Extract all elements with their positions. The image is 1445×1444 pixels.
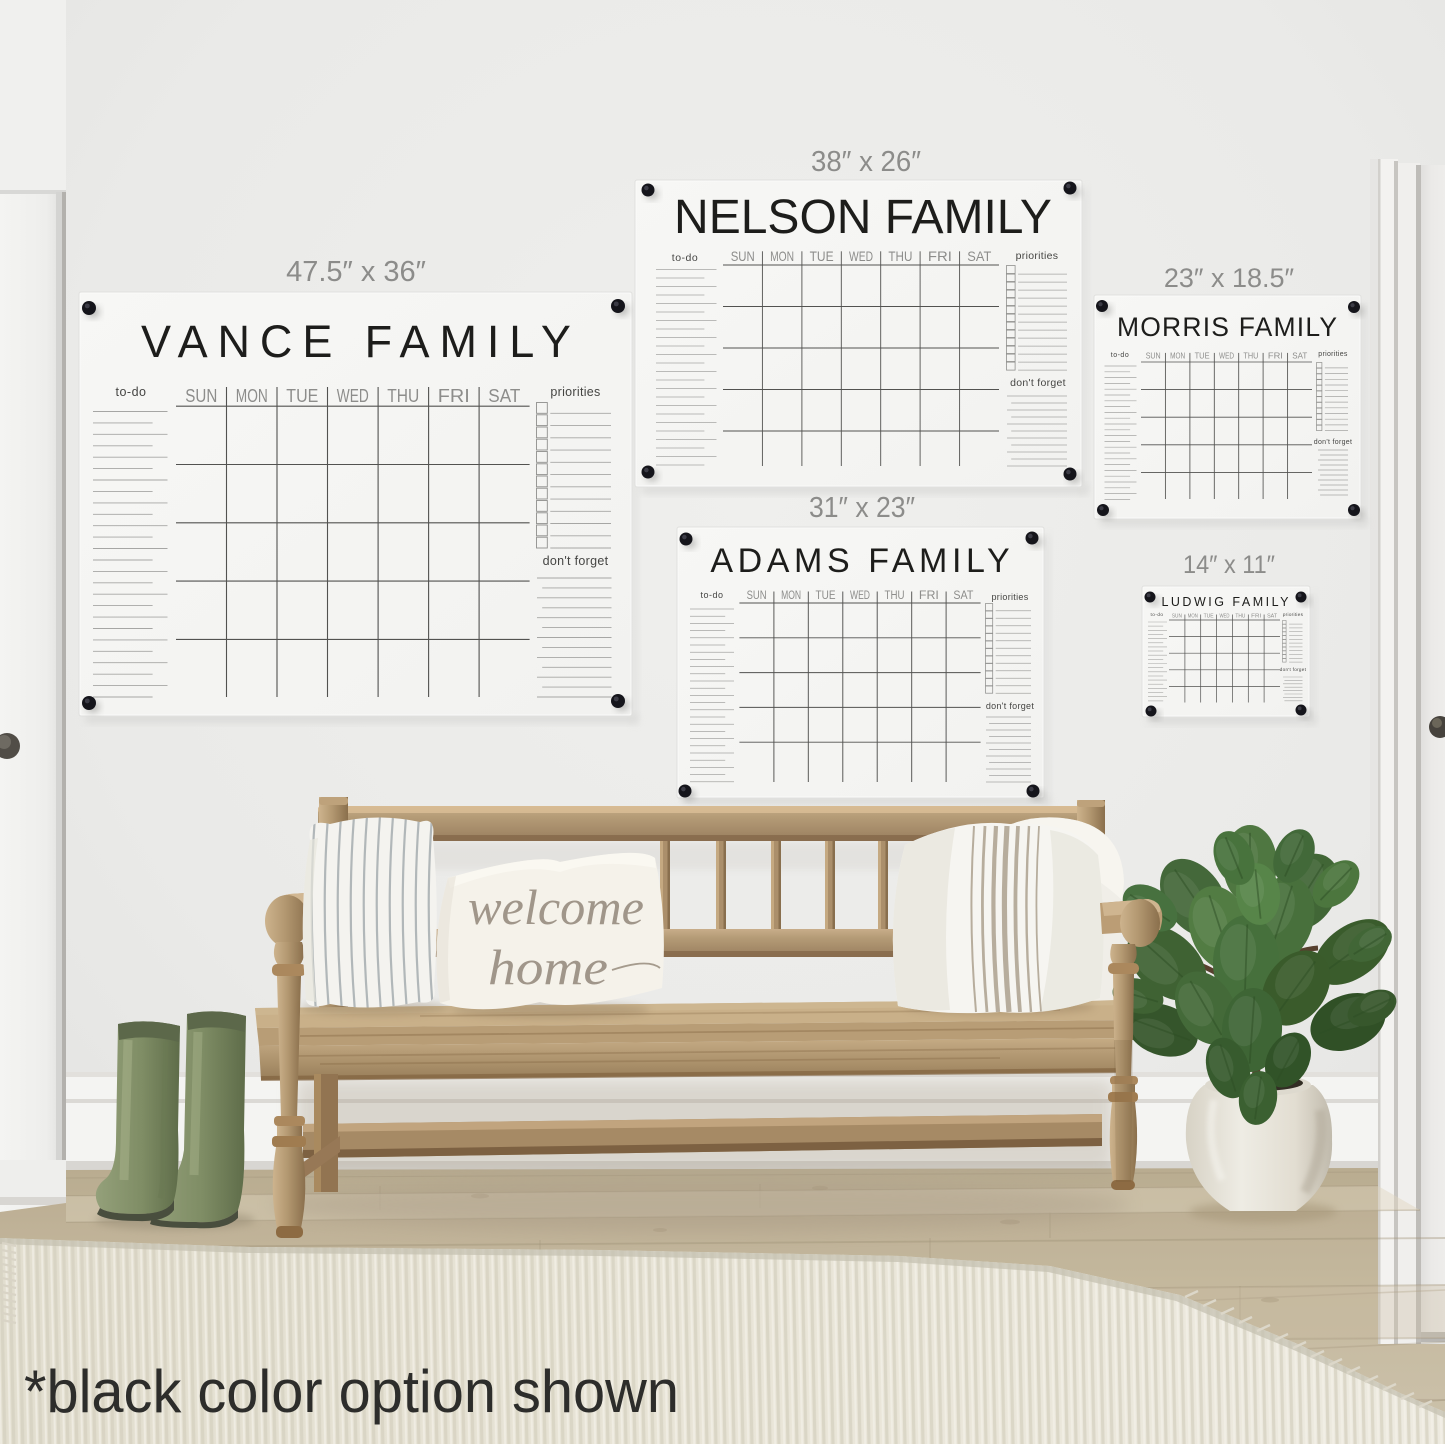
svg-text:don't forget: don't forget — [1010, 377, 1066, 389]
svg-text:TUE: TUE — [810, 248, 834, 264]
svg-text:THU: THU — [387, 386, 419, 406]
svg-text:SUN: SUN — [185, 386, 217, 406]
svg-text:THU: THU — [1243, 351, 1258, 361]
svg-text:welcome: welcome — [468, 879, 644, 935]
svg-text:SUN: SUN — [1146, 351, 1161, 361]
svg-text:priorities: priorities — [1283, 612, 1304, 617]
svg-text:TUE: TUE — [816, 590, 836, 602]
svg-text:FRI: FRI — [438, 386, 470, 406]
svg-text:TUE: TUE — [286, 386, 318, 406]
svg-text:SAT: SAT — [488, 386, 520, 406]
svg-text:23″ x 18.5″: 23″ x 18.5″ — [1164, 263, 1295, 293]
svg-text:38″ x 26″: 38″ x 26″ — [811, 146, 921, 178]
svg-text:don't forget: don't forget — [1280, 667, 1307, 672]
svg-text:priorities: priorities — [1016, 250, 1059, 262]
svg-text:WED: WED — [1220, 614, 1230, 620]
svg-text:don't forget: don't forget — [543, 554, 609, 568]
svg-text:TUE: TUE — [1195, 351, 1210, 361]
svg-text:WED: WED — [337, 386, 369, 406]
svg-text:VANCE FAMILY: VANCE FAMILY — [141, 316, 581, 367]
svg-text:to-do: to-do — [1111, 352, 1129, 359]
svg-text:MON: MON — [236, 386, 268, 406]
svg-text:priorities: priorities — [991, 592, 1028, 602]
svg-text:FRI: FRI — [928, 248, 952, 264]
svg-text:SUN: SUN — [747, 590, 767, 602]
svg-text:SAT: SAT — [953, 590, 973, 602]
svg-text:to-do: to-do — [700, 590, 723, 600]
svg-text:SAT: SAT — [1292, 351, 1307, 361]
svg-text:SUN: SUN — [1172, 614, 1182, 620]
svg-text:SAT: SAT — [1267, 614, 1278, 620]
svg-text:home: home — [488, 939, 608, 995]
svg-text:priorities: priorities — [1318, 351, 1348, 358]
svg-text:THU: THU — [888, 248, 912, 264]
svg-text:priorities: priorities — [550, 385, 600, 399]
svg-text:THU: THU — [885, 590, 905, 602]
svg-text:31″ x 23″: 31″ x 23″ — [809, 492, 915, 524]
svg-text:to-do: to-do — [672, 252, 698, 264]
svg-text:SAT: SAT — [967, 248, 991, 264]
svg-text:don't forget: don't forget — [1314, 439, 1352, 446]
svg-text:SUN: SUN — [731, 248, 755, 264]
svg-text:FRI: FRI — [919, 590, 939, 602]
svg-text:MON: MON — [770, 248, 794, 264]
svg-text:WED: WED — [849, 248, 873, 264]
svg-text:LUDWIG FAMILY: LUDWIG FAMILY — [1161, 595, 1291, 609]
svg-text:TUE: TUE — [1204, 614, 1214, 620]
svg-text:47.5″ x 36″: 47.5″ x 36″ — [286, 256, 426, 288]
svg-text:WED: WED — [850, 590, 870, 602]
svg-text:don't forget: don't forget — [986, 701, 1035, 711]
svg-text:ADAMS FAMILY: ADAMS FAMILY — [710, 542, 1014, 580]
svg-text:MORRIS FAMILY: MORRIS FAMILY — [1117, 312, 1338, 342]
svg-text:FRI: FRI — [1251, 614, 1262, 620]
svg-text:NELSON FAMILY: NELSON FAMILY — [674, 191, 1052, 244]
svg-text:MON: MON — [1188, 614, 1198, 620]
svg-text:to-do: to-do — [1151, 612, 1164, 617]
svg-text:MON: MON — [781, 590, 801, 602]
svg-text:14″ x 11″: 14″ x 11″ — [1183, 551, 1275, 579]
svg-text:THU: THU — [1235, 614, 1245, 620]
svg-text:FRI: FRI — [1268, 351, 1283, 361]
svg-text:*black color option shown: *black color option shown — [24, 1358, 679, 1425]
svg-text:to-do: to-do — [116, 385, 147, 399]
svg-text:MON: MON — [1170, 351, 1185, 361]
svg-text:WED: WED — [1219, 351, 1234, 361]
